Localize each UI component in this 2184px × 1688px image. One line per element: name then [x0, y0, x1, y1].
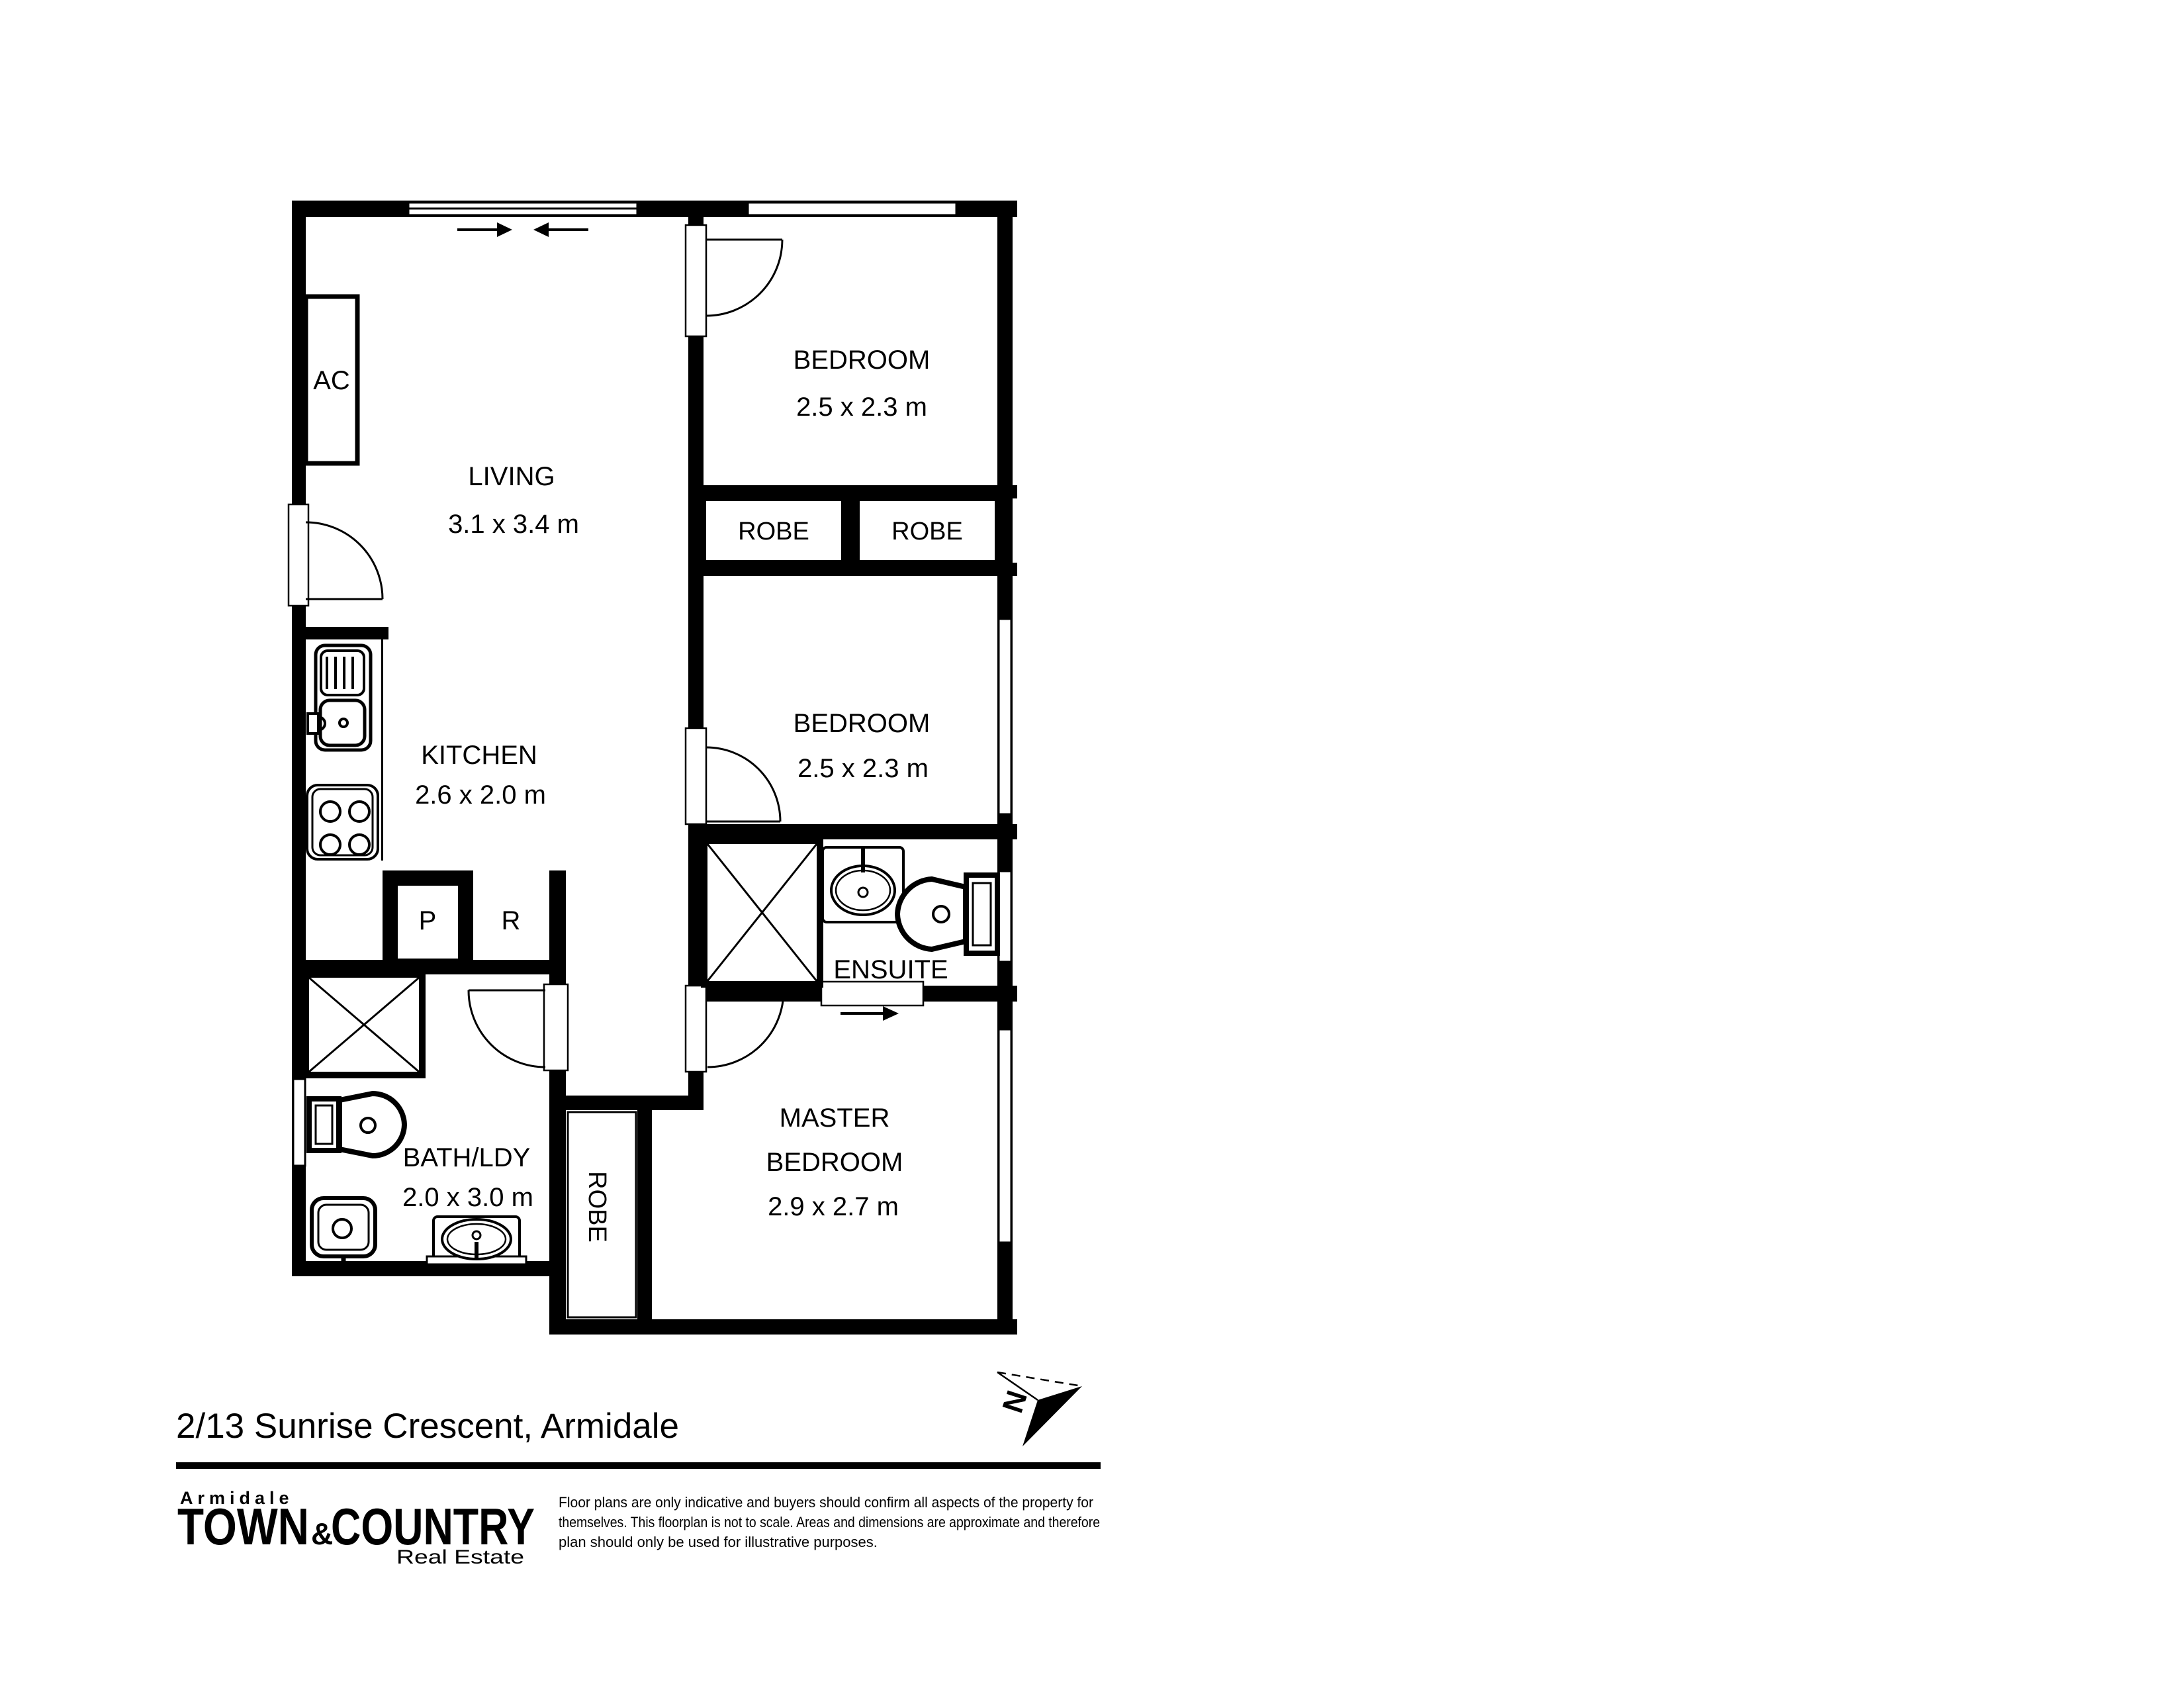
master-dims: 2.9 x 2.7 m: [768, 1192, 899, 1221]
bedroom1-label: BEDROOM: [794, 346, 931, 375]
door-master: [707, 991, 784, 1067]
ac-label: AC: [313, 366, 350, 395]
wall-robe-divider: [844, 498, 857, 563]
burner: [349, 835, 369, 855]
ensuite-vanity-icon: [823, 847, 903, 922]
toilet-bowl: [897, 879, 966, 949]
ensuite-shower-icon: [704, 841, 820, 984]
wall-robe-row-bottom: [688, 563, 1017, 576]
ensuite-toilet-icon: [897, 875, 997, 953]
burner: [320, 835, 340, 855]
jamb-bedroom1: [686, 225, 706, 336]
bath-toilet-icon: [309, 1094, 404, 1156]
basin-drain: [473, 1231, 480, 1239]
wall-robe-master-right: [637, 1110, 652, 1319]
bedroom1-dims: 2.5 x 2.3 m: [796, 393, 927, 422]
bath-shower-icon: [306, 974, 422, 1075]
window-master: [999, 1029, 1011, 1243]
sink-drain: [340, 719, 347, 727]
vanity-drain: [858, 888, 868, 897]
slider-arrow-right-head: [497, 222, 512, 237]
master-label-1: MASTER: [780, 1103, 890, 1133]
ensuite-label: ENSUITE: [833, 955, 948, 984]
robe1-label: ROBE: [738, 518, 809, 545]
tub-drain: [333, 1219, 351, 1238]
window-bedroom1: [748, 203, 956, 215]
kitchen-dims: 2.6 x 2.0 m: [415, 780, 546, 810]
toilet-flush: [933, 906, 949, 922]
logo-ampersand: &: [311, 1517, 333, 1551]
bath-dims: 2.0 x 3.0 m: [402, 1183, 533, 1212]
window-bedroom2: [999, 619, 1011, 814]
jamb-master: [686, 986, 706, 1072]
toilet-flush: [361, 1118, 375, 1133]
pantry-label: P: [419, 906, 437, 935]
toilet-cistern-inner: [316, 1105, 332, 1144]
kitchen-counter-edge: [381, 639, 383, 861]
bath-label: BATH/LDY: [403, 1143, 531, 1172]
wall-pantry-left: [383, 870, 395, 974]
wall-bath-right: [549, 870, 566, 1335]
floorplan-canvas: AC LIVING 3.1 x 3.4 m BEDROOM 2.5 x 2.3 …: [0, 0, 2184, 1688]
address-title: 2/13 Sunrise Crescent, Armidale: [176, 1407, 679, 1446]
living-dims: 3.1 x 3.4 m: [448, 510, 579, 539]
kitchen-label: KITCHEN: [421, 741, 537, 770]
living-label: LIVING: [468, 462, 555, 491]
jamb-ensuite-slider: [821, 982, 923, 1006]
window-bath: [293, 1079, 305, 1166]
wall-bottom-right: [549, 1319, 1017, 1335]
bedroom2-label: BEDROOM: [794, 709, 931, 738]
kitchen-sink-icon: [308, 645, 371, 750]
robe2-label: ROBE: [891, 518, 963, 545]
wall-pantry-right: [461, 870, 473, 974]
logo-tagline: Real Estate: [396, 1546, 524, 1568]
wall-bedroom1-bottom: [688, 485, 1017, 498]
master-label-2: BEDROOM: [766, 1148, 903, 1177]
footer-divider: [176, 1462, 1101, 1469]
door-living-entry: [306, 522, 383, 599]
window-ensuite: [999, 871, 1011, 962]
bath-basin-icon: [427, 1217, 526, 1264]
logo-town-text: TOWN: [177, 1497, 309, 1556]
jamb-bedroom2: [686, 728, 706, 824]
disclaimer-line-1: Floor plans are only indicative and buye…: [559, 1494, 1093, 1511]
slider-arrow-left-head: [533, 222, 549, 237]
door-bedroom1: [706, 240, 782, 316]
wall-bedroom2-bottom: [688, 824, 1017, 839]
door-bedroom2: [706, 747, 780, 821]
bedroom2-dims: 2.5 x 2.3 m: [797, 754, 929, 783]
ensuite-arrow-head: [883, 1006, 899, 1021]
agency-logo: Armidale TOWN & COUNTRY Real Estate: [177, 1488, 535, 1568]
north-label: N: [997, 1387, 1034, 1417]
disclaimer: Floor plans are only indicative and buye…: [559, 1494, 1100, 1550]
cooktop-icon: [307, 785, 378, 859]
wall-kitchen-top: [306, 627, 388, 639]
burner: [320, 802, 340, 821]
disclaimer-line-3: plan should only be used for illustrativ…: [559, 1534, 878, 1550]
footer: 2/13 Sunrise Crescent, Armidale Armidale…: [176, 1407, 1101, 1568]
wall-robe-master-top: [566, 1096, 704, 1110]
north-arrow-dashed-edge: [997, 1372, 1082, 1386]
burner: [349, 802, 369, 821]
fridge-label: R: [502, 906, 521, 935]
north-arrow-icon: N: [997, 1372, 1082, 1446]
jamb-living-entry: [289, 504, 308, 606]
wall-pantry-top: [383, 870, 473, 883]
floorplan-page: AC LIVING 3.1 x 3.4 m BEDROOM 2.5 x 2.3 …: [0, 0, 2184, 1688]
jamb-bath: [544, 984, 568, 1070]
door-bath: [469, 990, 545, 1067]
sink-tap-base: [308, 714, 318, 733]
toilet-cistern-inner: [973, 883, 991, 945]
robe-master-label: ROBE: [583, 1171, 611, 1243]
disclaimer-line-2: themselves. This floorplan is not to sca…: [559, 1514, 1100, 1530]
